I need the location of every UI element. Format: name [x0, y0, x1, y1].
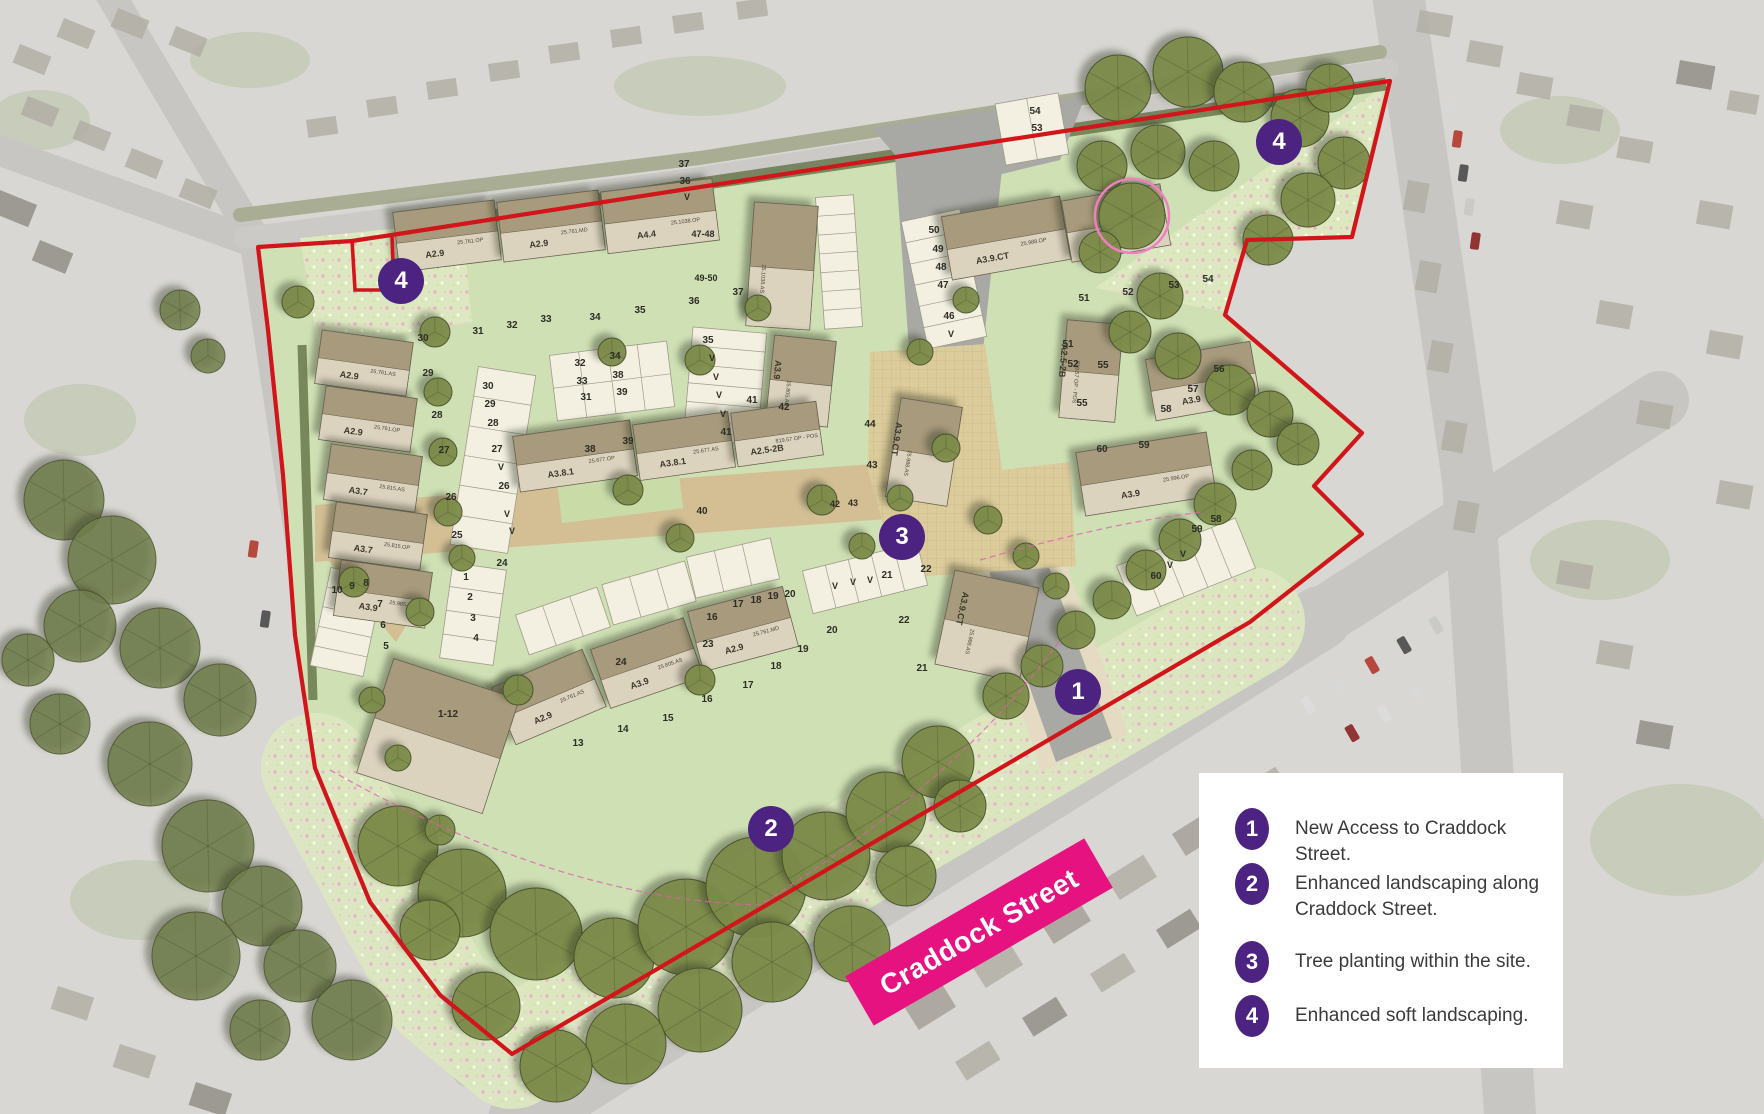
- plot-number-label: 18: [750, 595, 762, 606]
- plot-number-label: 5: [383, 641, 389, 652]
- plot-number-label: 60: [1096, 444, 1108, 455]
- legend-number-badge-4: 4: [1235, 995, 1269, 1037]
- plot-number-label: V: [832, 581, 838, 591]
- plot-number-label: 39: [622, 436, 634, 447]
- aerial-house-roof: [1516, 72, 1553, 100]
- plot-number-label: V: [684, 192, 690, 202]
- plot-number-label: 43: [848, 498, 858, 508]
- plot-number-label: 29: [484, 399, 496, 410]
- aerial-house-roof: [57, 18, 96, 49]
- aerial-house-roof: [1676, 60, 1716, 90]
- plot-number-label: 39: [616, 387, 628, 398]
- plot-number-label: 36: [688, 296, 700, 307]
- aerial-house-roof: [1706, 330, 1744, 360]
- plot-number-label: 51: [1062, 339, 1074, 350]
- aerial-house-roof: [113, 1044, 157, 1079]
- aerial-house-roof: [0, 190, 37, 227]
- aerial-house-roof: [1727, 90, 1760, 115]
- plot-number-label: 59: [1191, 524, 1203, 535]
- plot-number-label: 2: [467, 592, 473, 603]
- tree-branch-line: [1329, 64, 1330, 88]
- plot-number-label: 1: [463, 572, 469, 583]
- plot-number-label: 30: [417, 333, 429, 344]
- aerial-house-roof: [1596, 640, 1634, 670]
- aerial-parked-car: [1470, 232, 1481, 250]
- plot-number-label: 18: [770, 661, 782, 672]
- plot-number-label: V: [867, 575, 873, 585]
- plot-number-label: V: [720, 409, 726, 419]
- plot-number-label: 8: [363, 578, 369, 589]
- legend-item-2: 2 Enhanced landscaping along Craddock St…: [1235, 863, 1557, 923]
- plot-number-label: 31: [580, 392, 592, 403]
- aerial-lawn: [1530, 520, 1670, 600]
- plot-number-label: 1-12: [438, 709, 458, 720]
- aerial-house-roof: [1022, 997, 1068, 1037]
- aerial-lawn: [24, 384, 136, 456]
- plot-number-label: 34: [589, 312, 601, 323]
- plot-number-label: 47-48: [691, 229, 714, 239]
- aerial-parked-car: [1408, 684, 1424, 703]
- plot-number-label: 17: [742, 680, 754, 691]
- plot-number-label: 22: [898, 615, 910, 626]
- plot-number-label: 49: [932, 244, 944, 255]
- aerial-house-roof: [1616, 136, 1653, 164]
- plot-number-label: 53: [1031, 123, 1043, 134]
- aerial-house-roof: [1636, 720, 1674, 750]
- aerial-house-roof: [1090, 953, 1136, 993]
- plot-number-label: 26: [445, 492, 457, 503]
- plot-number-label: 20: [826, 625, 838, 636]
- aerial-parked-car: [1332, 676, 1348, 695]
- plot-number-label: 30: [482, 381, 494, 392]
- tree-branch-line: [1159, 273, 1160, 296]
- aerial-lawn: [190, 32, 310, 88]
- plot-number-label: 33: [540, 314, 552, 325]
- aerial-house-roof: [1556, 200, 1594, 230]
- aerial-house-roof: [13, 44, 52, 75]
- plot-number-label: 50: [928, 225, 940, 236]
- aerial-house-roof: [672, 12, 704, 34]
- building: A2.925.761.MD: [489, 184, 605, 263]
- plot-number-label: 27: [491, 444, 503, 455]
- aerial-parked-car: [1376, 704, 1392, 723]
- tree-branch-line: [1160, 296, 1161, 319]
- aerial-parked-car: [1458, 164, 1469, 182]
- plot-number-label: 16: [701, 694, 713, 705]
- plot-number-label: 46: [943, 311, 955, 322]
- aerial-house-roof: [548, 42, 580, 64]
- aerial-house-roof: [426, 78, 458, 100]
- plot-number-label: 35: [702, 335, 714, 346]
- aerial-house-roof: [51, 986, 95, 1021]
- tree-branch-line: [1269, 391, 1270, 414]
- plot-number-label: 14: [617, 724, 629, 735]
- plot-number-label: V: [713, 372, 719, 382]
- aerial-house-roof: [306, 116, 338, 138]
- plot-number-label: 4: [473, 633, 479, 644]
- building: A2.5-2B819.57 OP - POS: [723, 395, 823, 467]
- map-marker-4: 4: [378, 258, 424, 304]
- plot-number-label: 52: [1122, 287, 1134, 298]
- plot-number-label: 32: [574, 358, 586, 369]
- plot-number-label: 37: [678, 159, 690, 170]
- plot-number-label: 13: [572, 738, 584, 749]
- plot-number-label: 10: [331, 585, 343, 596]
- tree-branch-line: [1006, 696, 1007, 719]
- plot-number-label: 54: [1029, 106, 1041, 117]
- building-type-label: A3.9: [772, 360, 784, 380]
- plot-number-label: 57: [1187, 384, 1199, 395]
- aerial-house-roof: [1466, 40, 1503, 68]
- plot-number-label: 53: [1168, 280, 1180, 291]
- aerial-parked-car: [1300, 696, 1316, 715]
- building-front: [1059, 371, 1119, 423]
- plot-number-label: 25: [451, 530, 463, 541]
- plot-number-label: 56: [1213, 364, 1225, 375]
- aerial-house-roof: [189, 1082, 233, 1114]
- aerial-house-roof: [1156, 909, 1202, 949]
- aerial-parked-car: [1446, 96, 1457, 114]
- plot-number-label: 40: [696, 506, 708, 517]
- aerial-parked-car: [1344, 724, 1360, 743]
- aerial-lawn: [614, 56, 786, 116]
- plot-number-label: 55: [1076, 398, 1088, 409]
- plot-number-label: V: [948, 329, 954, 339]
- plot-number-label: 47: [937, 280, 949, 291]
- plot-number-label: 21: [881, 570, 893, 581]
- plot-number-label: V: [509, 526, 515, 536]
- legend-number-badge-3: 3: [1235, 941, 1269, 983]
- legend-panel: 1 New Access to Craddock Street. 2 Enhan…: [1199, 773, 1563, 1068]
- aerial-lawn: [1500, 96, 1620, 164]
- plot-number-label: 36: [679, 176, 691, 187]
- plot-number-label: 21: [916, 663, 928, 674]
- site-plan-page: A2.925.761.OPA2.925.761.MDA4.425.1038.OP…: [0, 0, 1764, 1114]
- plot-number-label: 26: [498, 481, 510, 492]
- aerial-parked-car: [1452, 130, 1463, 148]
- legend-item-text: Enhanced landscaping along Craddock Stre…: [1295, 871, 1557, 923]
- map-marker-4: 4: [1256, 119, 1302, 165]
- plot-number-label: 44: [864, 419, 876, 430]
- plot-number-label: 20: [784, 589, 796, 600]
- plot-number-label: 38: [612, 370, 624, 381]
- plot-number-label: V: [709, 353, 715, 363]
- aerial-lawn: [1590, 784, 1764, 896]
- legend-item-3: 3 Tree planting within the site.: [1235, 941, 1557, 983]
- map-marker-2: 2: [748, 806, 794, 852]
- legend-item-4: 4 Enhanced soft landscaping.: [1235, 995, 1557, 1037]
- plot-number-label: 58: [1160, 404, 1172, 415]
- tree-branch-line: [1270, 414, 1271, 437]
- plot-number-label: 42: [778, 402, 790, 413]
- plot-number-label: 48: [935, 262, 947, 273]
- plot-number-label: 19: [797, 644, 809, 655]
- aerial-parked-car: [260, 610, 271, 628]
- aerial-house-roof: [488, 60, 520, 82]
- aerial-house-roof: [736, 0, 768, 20]
- aerial-parked-car: [1364, 656, 1380, 675]
- plot-number-label: 51: [1078, 293, 1090, 304]
- plot-number-label: 22: [920, 564, 932, 575]
- plot-number-label: V: [1167, 560, 1173, 570]
- plot-number-label: 28: [487, 418, 499, 429]
- legend-number-badge-1: 1: [1235, 808, 1269, 850]
- legend-item-text: New Access to Craddock Street.: [1295, 816, 1557, 868]
- aerial-house-roof: [610, 26, 642, 48]
- plot-number-label: 28: [431, 410, 443, 421]
- plot-number-label: 23: [702, 639, 714, 650]
- plot-number-label: 35: [634, 305, 646, 316]
- tree-branch-line: [1177, 333, 1178, 356]
- plot-number-label: V: [716, 390, 722, 400]
- plot-number-label: 60: [1150, 571, 1162, 582]
- plot-number-label: 27: [438, 445, 450, 456]
- aerial-house-roof: [366, 96, 398, 118]
- aerial-house-roof: [1716, 480, 1754, 510]
- legend-number-badge-2: 2: [1235, 863, 1269, 905]
- plot-number-label: V: [498, 462, 504, 472]
- plot-number-label: 34: [609, 351, 621, 362]
- aerial-house-roof: [955, 1041, 1001, 1081]
- aerial-house-roof: [169, 26, 208, 57]
- plot-number-label: V: [850, 577, 856, 587]
- plot-number-label: 15: [662, 713, 674, 724]
- plot-number-label: 19: [767, 591, 779, 602]
- aerial-house-roof: [1596, 300, 1634, 330]
- aerial-parked-car: [1464, 198, 1475, 216]
- plot-number-label: 29: [422, 368, 434, 379]
- aerial-parked-car: [1428, 616, 1444, 635]
- aerial-house-roof: [125, 148, 164, 179]
- plot-number-label: 54: [1202, 274, 1214, 285]
- plot-number-label: 58: [1210, 514, 1222, 525]
- aerial-parked-car: [248, 540, 259, 558]
- aerial-house-roof: [1696, 200, 1734, 230]
- tree-branch-line: [1178, 356, 1179, 379]
- tree-branch-line: [1005, 673, 1006, 696]
- aerial-parked-car: [1396, 636, 1412, 655]
- plot-number-label: V: [1180, 549, 1186, 559]
- plot-number-label: 24: [496, 558, 508, 569]
- plot-number-label: 49-50: [694, 273, 717, 283]
- aerial-house-roof: [73, 120, 112, 151]
- map-marker-1: 1: [1055, 669, 1101, 715]
- aerial-house-roof: [1106, 855, 1157, 900]
- plot-number-label: 16: [706, 612, 718, 623]
- plot-number-label: 31: [472, 326, 484, 337]
- legend-item-1: 1 New Access to Craddock Street.: [1235, 808, 1557, 868]
- plot-number-label: 9: [349, 581, 355, 592]
- plot-number-label: 33: [576, 376, 588, 387]
- plot-number-label: 41: [746, 395, 758, 406]
- building: A4.425.1038.OP: [593, 172, 719, 254]
- plot-number-label: 52: [1067, 359, 1079, 370]
- plot-number-label: 6: [380, 620, 386, 631]
- plot-number-label: 41: [720, 427, 732, 438]
- plot-number-label: 59: [1138, 440, 1150, 451]
- plot-number-label: 42: [830, 499, 840, 509]
- plot-number-label: 55: [1097, 360, 1109, 371]
- plot-number-label: 43: [866, 460, 878, 471]
- legend-item-text: Enhanced soft landscaping.: [1295, 1003, 1557, 1029]
- plot-number-label: 38: [584, 444, 596, 455]
- plot-number-label: V: [504, 509, 510, 519]
- plot-number-label: 24: [615, 657, 627, 668]
- plot-number-label: 17: [732, 599, 744, 610]
- map-marker-3: 3: [879, 514, 925, 560]
- plot-number-label: 32: [506, 320, 518, 331]
- plot-number-label: 7: [377, 599, 383, 610]
- legend-item-text: Tree planting within the site.: [1295, 949, 1557, 975]
- aerial-house-roof: [32, 240, 74, 274]
- plot-number-label: 37: [732, 287, 744, 298]
- plot-number-label: 3: [470, 613, 476, 624]
